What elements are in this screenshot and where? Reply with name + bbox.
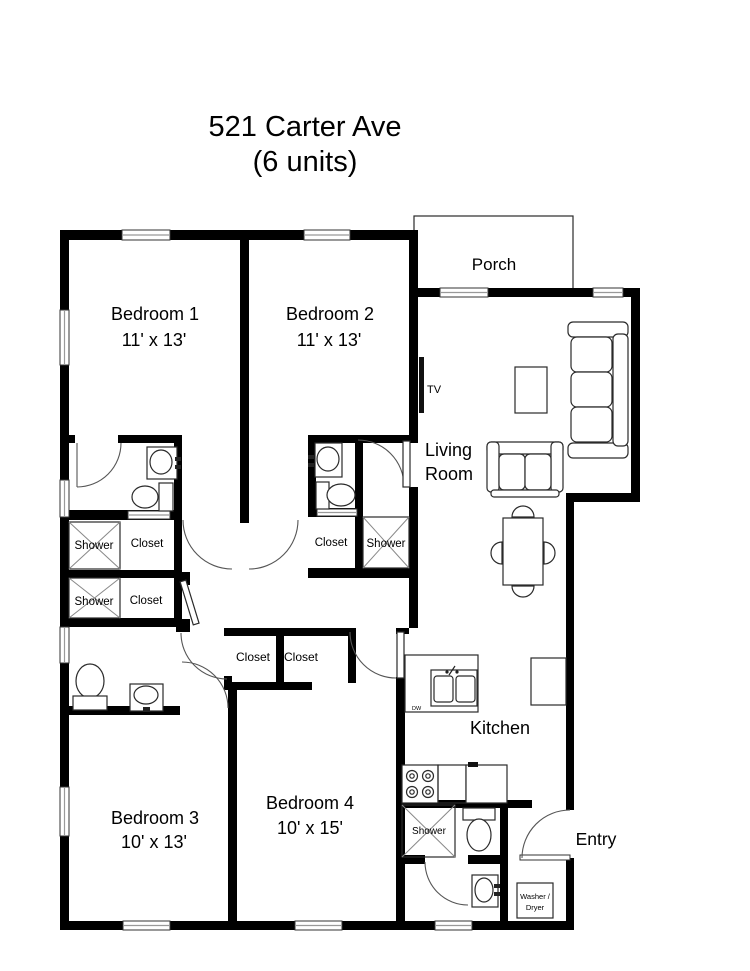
room-dims-bedroom-3: 10' x 13' bbox=[121, 832, 187, 852]
shower-2: Shower bbox=[69, 578, 120, 618]
room-dims-bedroom-1: 11' x 13' bbox=[122, 330, 187, 350]
porch-outline bbox=[414, 216, 573, 292]
room-dims-bedroom-4: 10' x 15' bbox=[277, 818, 343, 838]
coffee-table bbox=[515, 367, 547, 413]
kitchen-sink bbox=[431, 666, 477, 706]
room-label-bedroom-2: Bedroom 2 bbox=[286, 304, 374, 324]
bedroom2-suite-door-arc bbox=[358, 440, 404, 486]
floor-plan-page: 521 Carter Ave (6 units) Porch bbox=[0, 0, 750, 971]
porch: Porch bbox=[414, 216, 573, 292]
sofa bbox=[568, 322, 628, 458]
bedroom2-suite-door-leaf bbox=[403, 441, 410, 487]
shower-4: Shower bbox=[402, 805, 455, 857]
closet-label: Closet bbox=[284, 650, 319, 664]
room-label-kitchen: Kitchen bbox=[470, 718, 530, 738]
window bbox=[123, 921, 170, 930]
bedroom2-hall-door-arc bbox=[249, 520, 298, 569]
room-label-bedroom-1: Bedroom 1 bbox=[111, 304, 199, 324]
shower-3: Shower bbox=[363, 517, 409, 568]
tv: TV bbox=[419, 357, 442, 413]
closet-door-arc bbox=[181, 633, 227, 679]
porch-label: Porch bbox=[472, 255, 516, 274]
window bbox=[295, 921, 342, 930]
tv-label: TV bbox=[427, 384, 442, 396]
plan-title: 521 Carter Ave (6 units) bbox=[209, 111, 402, 178]
sink bbox=[130, 684, 163, 712]
window bbox=[435, 921, 472, 930]
window bbox=[60, 627, 69, 663]
closet-label: Closet bbox=[236, 650, 271, 664]
counter-section bbox=[438, 765, 466, 803]
room-label-bedroom-4: Bedroom 4 bbox=[266, 793, 354, 813]
shower-label: Shower bbox=[412, 826, 447, 837]
hall-bathroom-door-leaf bbox=[180, 580, 199, 625]
stove bbox=[402, 765, 438, 803]
window bbox=[60, 787, 69, 836]
kitchen-counter-right bbox=[531, 658, 566, 705]
shower-label: Shower bbox=[75, 540, 114, 552]
window bbox=[440, 288, 488, 297]
bathroom-1 bbox=[132, 447, 181, 511]
refrigerator bbox=[466, 762, 507, 803]
entry-door-arc bbox=[522, 810, 570, 858]
bath-door-arc bbox=[425, 862, 468, 905]
window bbox=[593, 288, 623, 297]
dining-chair bbox=[491, 542, 502, 564]
dining-chair bbox=[544, 542, 555, 564]
room-label-bedroom-3: Bedroom 3 bbox=[111, 808, 199, 828]
shower-label: Shower bbox=[75, 596, 114, 608]
closet-door bbox=[317, 509, 357, 516]
closet-label: Closet bbox=[130, 595, 163, 607]
washer-dryer-label-line1: Washer / bbox=[520, 892, 551, 901]
bedroom1-hall-door-arc bbox=[183, 520, 232, 569]
title-line1: 521 Carter Ave bbox=[209, 111, 402, 143]
toilet bbox=[463, 808, 495, 851]
closet-door bbox=[128, 511, 170, 519]
room-label-entry: Entry bbox=[576, 829, 617, 849]
bedroom4-door-arc bbox=[350, 632, 396, 678]
shower-1: Shower bbox=[69, 522, 120, 569]
dining-chair bbox=[512, 506, 534, 517]
window bbox=[60, 480, 69, 517]
bedroom4-door-leaf bbox=[397, 632, 404, 678]
bedroom3-door-arc bbox=[182, 662, 228, 708]
dining-table-set bbox=[491, 506, 555, 597]
room-label-living-line2: Room bbox=[425, 464, 473, 484]
toilet bbox=[73, 664, 107, 710]
bathroom-3 bbox=[73, 664, 163, 712]
toilet bbox=[132, 483, 173, 511]
window bbox=[122, 230, 170, 240]
sink bbox=[147, 447, 181, 479]
window bbox=[304, 230, 350, 240]
entry-threshold bbox=[520, 855, 570, 860]
dining-chair bbox=[512, 586, 534, 597]
dining-table bbox=[503, 518, 543, 585]
title-line2: (6 units) bbox=[253, 146, 358, 178]
sink bbox=[472, 875, 500, 907]
tv-unit bbox=[419, 357, 424, 413]
bedroom1-bath-door-arc bbox=[77, 443, 121, 487]
room-label-living-line1: Living bbox=[425, 440, 472, 460]
loveseat bbox=[487, 442, 563, 497]
closet-label: Closet bbox=[131, 538, 164, 550]
shower-label: Shower bbox=[367, 538, 406, 550]
dishwasher-label: DW bbox=[412, 706, 422, 712]
floor-plan: 521 Carter Ave (6 units) Porch bbox=[0, 0, 750, 971]
window bbox=[60, 310, 69, 365]
toilet bbox=[316, 482, 355, 509]
washer-dryer: Washer / Dryer bbox=[517, 883, 553, 918]
washer-dryer-label-line2: Dryer bbox=[526, 903, 545, 912]
room-dims-bedroom-2: 11' x 13' bbox=[297, 330, 362, 350]
closet-label: Closet bbox=[315, 537, 348, 549]
